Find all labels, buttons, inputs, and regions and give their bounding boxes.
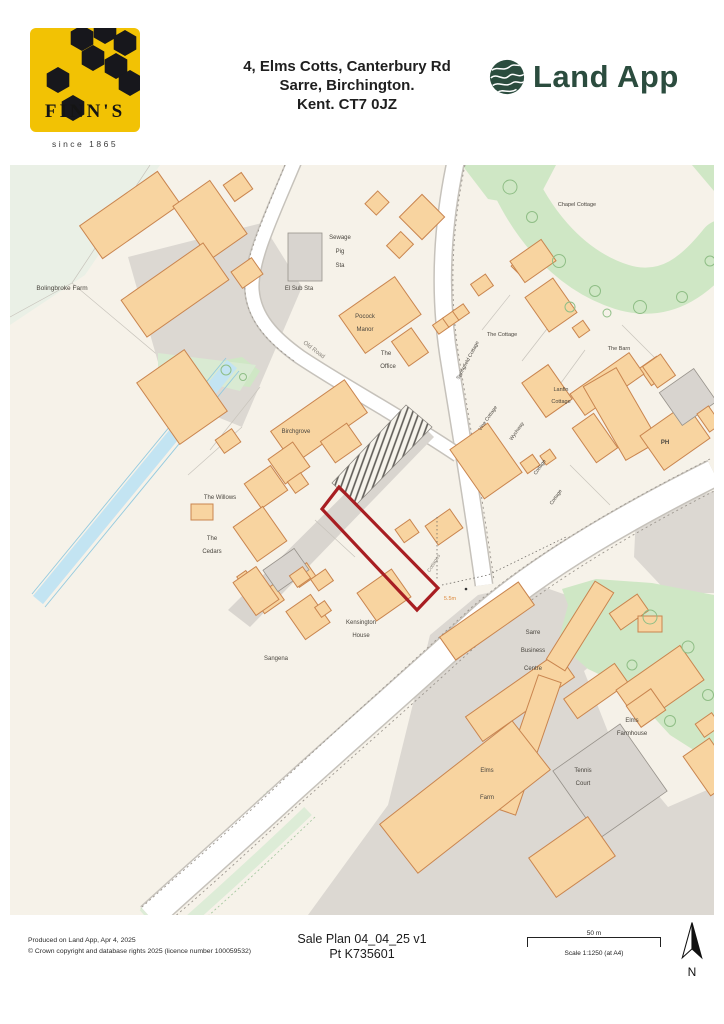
map-label: Office [380,364,396,370]
map-label: 5.5m [444,596,457,602]
map-label: Sewage [329,235,351,241]
plan-title: Sale Plan 04_04_25 v1 [242,932,482,947]
map-label: House [352,633,370,639]
map-label: Centre [524,666,543,672]
map-label: Elms [480,768,493,774]
map-label: PH [661,440,669,446]
map-label: Chapel Cottage [558,202,596,208]
sale-plan-page: { "header": { "finns_brand": "FINN'S", "… [0,0,724,1024]
north-arrow: N [674,920,710,979]
scale-text: Scale 1:1250 (at A4) [527,950,661,957]
map-label: Pocock [355,314,376,320]
map-label: The Willows [204,495,236,501]
map-label: Business [521,648,545,654]
map-label: Tennis [574,768,591,774]
scale-bar-line: 50 m [527,937,661,947]
finns-since-text: since 1865 [30,139,140,149]
map-label: The [207,536,218,542]
address-line-2: Sarre, Birchington. [187,76,507,95]
map-label: Pig [336,249,345,255]
scale-distance: 50 m [528,930,660,937]
site-plan-map: Bolingbroke FarmSewagePigStaEl Sub StaOl… [10,165,714,915]
map-credits: Produced on Land App, Apr 4, 2025 © Crow… [28,936,251,957]
scale-bar: 50 m Scale 1:1250 (at A4) [527,937,661,957]
map-label: El Sub Sta [285,286,314,292]
landapp-globe-icon [488,58,526,96]
north-arrow-icon [677,920,707,962]
map-label: Sta [335,263,345,269]
copyright-line: © Crown copyright and database rights 20… [28,947,251,958]
finns-logo: FINN'S since 1865 [30,28,140,149]
map-label: The Barn [608,346,631,352]
property-address: 4, Elms Cotts, Canterbury Rd Sarre, Birc… [187,57,507,114]
map-label: Cottage [551,399,570,405]
map-label: Manor [356,327,373,333]
produced-line: Produced on Land App, Apr 4, 2025 [28,936,251,947]
map-label: Farmhouse [617,731,648,737]
finns-logo-box: FINN'S [30,28,140,132]
map-label: Elms [625,718,638,724]
map-label: Sarre [526,630,541,636]
north-label: N [674,965,710,979]
map-label: Cedars [202,549,221,555]
map-label: The [381,351,392,357]
address-line-3: Kent. CT7 0JZ [187,95,507,114]
address-line-1: 4, Elms Cotts, Canterbury Rd [187,57,507,76]
map-label: Kensington [346,620,376,626]
plan-reference: Pt K735601 [242,947,482,962]
landapp-logo: Land App [488,58,679,96]
finns-brand-text: FINN'S [30,101,140,123]
map-label: Lanfin [554,387,569,393]
map-label: Court [576,781,591,787]
map-canvas: Bolingbroke FarmSewagePigStaEl Sub StaOl… [10,165,714,915]
plan-title-block: Sale Plan 04_04_25 v1 Pt K735601 [242,932,482,962]
map-label: Farm [480,795,494,801]
map-label: Birchgrove [282,429,311,435]
map-label: Bolingbroke Farm [36,285,87,292]
map-label: Sangena [264,656,289,662]
map-label: The Cottage [487,332,517,338]
landapp-wordmark: Land App [533,59,679,95]
